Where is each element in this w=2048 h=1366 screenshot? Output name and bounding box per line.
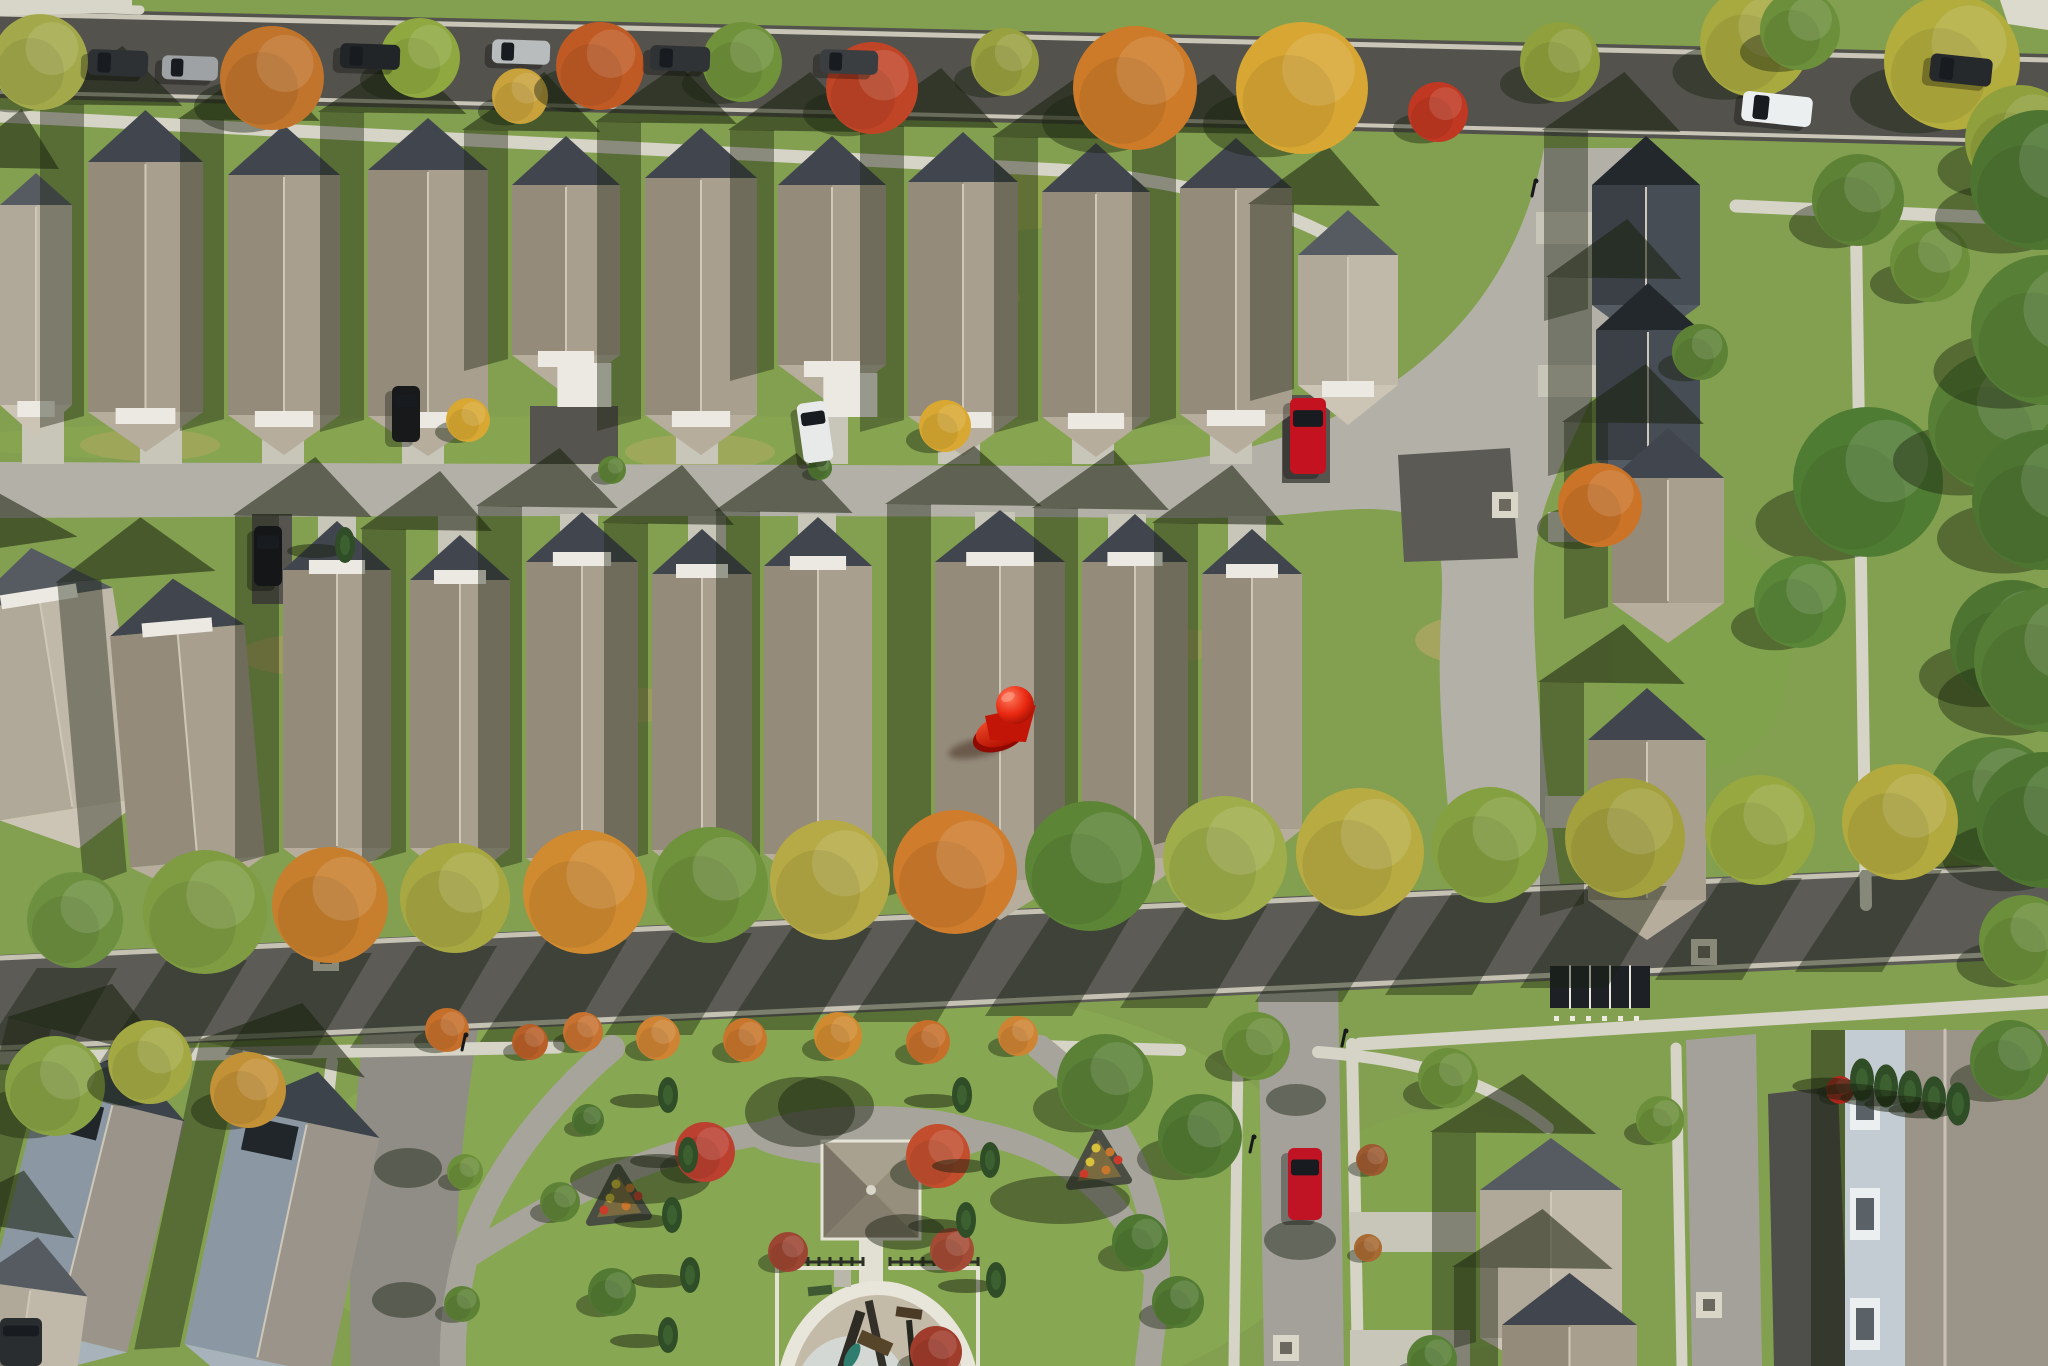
tree-highlight — [1282, 33, 1355, 106]
parked-car-windshield — [349, 46, 363, 65]
ground-shadow — [1266, 1084, 1326, 1116]
tree-highlight — [1091, 1042, 1144, 1095]
fence-post — [900, 1257, 903, 1266]
house-part — [1226, 564, 1278, 578]
house-part — [645, 178, 701, 415]
tree-highlight — [605, 1272, 631, 1298]
conifer-tree — [667, 1205, 677, 1225]
conifer-shadow — [610, 1334, 666, 1348]
house-part — [88, 162, 146, 412]
tree-highlight — [554, 1185, 576, 1207]
house-part — [180, 119, 224, 431]
aerial-photo — [0, 0, 2048, 1366]
house-part — [604, 523, 648, 866]
solar-post — [1586, 1016, 1591, 1021]
house-part — [1180, 188, 1236, 414]
tree-highlight — [995, 34, 1032, 71]
ground-shadow — [372, 1282, 436, 1318]
fence-post — [911, 1257, 914, 1266]
house-part — [1454, 1267, 1498, 1366]
tree-highlight — [577, 1015, 599, 1037]
sidewalk — [1234, 1054, 1238, 1366]
parked-car — [332, 43, 400, 75]
tree-highlight — [1170, 1280, 1199, 1309]
tree-highlight — [1364, 1236, 1379, 1251]
fence-post — [889, 1257, 892, 1266]
conifer-tree — [663, 1325, 673, 1345]
tree-highlight — [186, 861, 254, 929]
house-part — [1646, 185, 1700, 305]
conifer-tree — [1952, 1092, 1964, 1116]
conifer-shadow — [287, 544, 343, 558]
tree-highlight — [1786, 564, 1837, 615]
black-car-body — [254, 526, 282, 586]
house-part — [1042, 192, 1096, 417]
parked-car-body — [650, 45, 711, 72]
tree-highlight — [1367, 1147, 1385, 1165]
house-part — [1348, 255, 1398, 385]
tree-highlight — [61, 880, 114, 933]
fence-post — [818, 1257, 821, 1266]
tree-highlight — [936, 821, 1004, 889]
parked-car-body — [0, 1318, 42, 1366]
conifer-tree — [685, 1265, 695, 1285]
condo-balcony-inset — [1856, 1308, 1874, 1340]
parked-car-windshield — [171, 58, 184, 76]
tree-highlight — [1012, 1019, 1034, 1041]
conifer-shadow — [610, 1094, 666, 1108]
tree-highlight — [1607, 788, 1673, 854]
tree-highlight — [460, 1157, 480, 1177]
conifer-tree — [663, 1085, 673, 1105]
house-part — [553, 552, 611, 566]
tree-highlight — [26, 22, 79, 75]
flowers — [1086, 1158, 1095, 1167]
tree-highlight — [566, 841, 634, 909]
lamp-head — [1534, 179, 1539, 184]
red-parked-car — [1283, 398, 1326, 479]
tree-highlight — [1187, 1101, 1233, 1147]
house-part — [1207, 410, 1265, 426]
tree-highlight — [1246, 1018, 1283, 1055]
tree-highlight — [937, 404, 966, 433]
house-part — [778, 185, 832, 365]
tree-highlight — [693, 837, 757, 901]
tree-highlight — [440, 1012, 464, 1036]
tree-highlight — [928, 1330, 957, 1359]
fence-post — [840, 1257, 843, 1266]
lamp-head — [1344, 1029, 1349, 1034]
house-part — [478, 506, 522, 874]
tree-highlight — [1439, 1053, 1472, 1086]
house-part — [1068, 413, 1124, 429]
flowers — [600, 1206, 609, 1215]
ground-shadow — [778, 1076, 874, 1136]
flowers — [1106, 1148, 1115, 1157]
black-car-body — [392, 386, 420, 442]
parked-car — [80, 49, 148, 82]
house-part — [228, 175, 284, 415]
tree-highlight — [408, 25, 452, 69]
conifer-tree — [683, 1145, 693, 1165]
house-part — [790, 556, 846, 570]
house-part — [1252, 574, 1302, 829]
house-part — [818, 566, 872, 854]
conifer-tree — [340, 535, 350, 555]
house-part — [1298, 255, 1348, 385]
tree-highlight — [1116, 37, 1184, 105]
parked-car-windshield — [501, 42, 514, 60]
conifer-shadow — [904, 1094, 960, 1108]
ground-shadow — [990, 1176, 1130, 1224]
house-part — [1668, 478, 1724, 603]
tree-highlight — [439, 852, 500, 913]
red-parked-car-windshield — [1293, 410, 1323, 427]
house-part — [1132, 132, 1176, 430]
parked-car-windshield — [659, 48, 673, 67]
tree-highlight — [1206, 807, 1274, 875]
tree-highlight — [137, 1027, 183, 1073]
house-part — [597, 122, 641, 431]
solar-post — [1554, 1016, 1559, 1021]
conifer-shadow — [1888, 1102, 1955, 1119]
parked-car-body — [492, 39, 551, 65]
tree-highlight — [461, 402, 485, 426]
house-part — [652, 574, 702, 850]
tree-highlight — [1425, 1339, 1453, 1366]
black-car — [385, 386, 420, 447]
conifer-tree — [961, 1210, 971, 1230]
house-part — [672, 411, 730, 427]
red-driving-car-body — [1288, 1148, 1322, 1220]
flowers — [1092, 1144, 1101, 1153]
house-part — [1250, 204, 1294, 401]
red-driving-car-windshield — [1291, 1160, 1319, 1176]
solar-post — [1602, 1016, 1607, 1021]
red-driving-car — [1281, 1148, 1322, 1225]
tree-highlight — [525, 1027, 545, 1047]
tree-highlight — [1587, 470, 1633, 516]
tree-highlight — [1653, 1100, 1679, 1126]
house-part — [860, 126, 904, 432]
tree-highlight — [457, 1289, 477, 1309]
house-part — [1540, 682, 1584, 916]
house-part — [526, 562, 582, 858]
house-part — [410, 580, 460, 848]
parked-car — [484, 39, 550, 70]
lamp-head — [1252, 1135, 1257, 1140]
manhole-cover — [1703, 1299, 1715, 1311]
parked-car-body — [340, 43, 401, 70]
tree-highlight — [782, 1235, 804, 1257]
tree-highlight — [730, 29, 774, 73]
house-part — [716, 511, 760, 870]
house-part — [362, 529, 406, 864]
fence-post — [851, 1257, 854, 1266]
house-part — [1322, 381, 1374, 397]
condo-balcony-inset — [1856, 1198, 1874, 1230]
house-part — [1502, 1325, 1570, 1366]
parked-car-windshield — [97, 52, 111, 72]
conifer-shadow — [932, 1159, 988, 1173]
conifer-shadow — [632, 1274, 688, 1288]
park-structure — [834, 1270, 851, 1287]
parked-car-windshield — [1939, 57, 1955, 80]
tree-highlight — [1998, 1027, 2042, 1071]
house-part — [908, 182, 963, 416]
house-part — [116, 408, 176, 424]
tree-highlight — [1548, 29, 1592, 73]
solar-post — [1618, 1016, 1623, 1021]
conifer-shadow — [630, 1154, 686, 1168]
flowers — [1102, 1166, 1111, 1175]
fence-post — [977, 1257, 980, 1266]
conifer-tree — [957, 1085, 967, 1105]
conifer-tree — [991, 1270, 1001, 1290]
tree-highlight — [1744, 784, 1805, 845]
house-part — [1570, 1325, 1638, 1366]
house-part — [255, 411, 313, 427]
sidewalk — [1676, 1048, 1682, 1366]
ground-shadow — [374, 1148, 442, 1188]
tree-highlight — [256, 35, 313, 92]
lamp-head — [464, 1033, 469, 1038]
parked-car-body — [820, 49, 879, 75]
tree-highlight — [1883, 774, 1947, 838]
house-part — [1202, 574, 1252, 829]
pin-head — [996, 686, 1034, 724]
house-part — [1154, 523, 1198, 845]
flowers — [1114, 1156, 1123, 1165]
solar-post — [1634, 1016, 1639, 1021]
tree-highlight — [696, 1127, 729, 1160]
black-car-windshield — [395, 395, 417, 407]
red-parked-car-body — [1290, 398, 1326, 474]
tree-highlight — [1341, 799, 1411, 869]
tree-highlight — [608, 458, 623, 473]
house-part — [966, 552, 1034, 566]
tree-highlight — [921, 1024, 945, 1048]
house-part — [512, 185, 566, 355]
house-part — [320, 112, 364, 432]
parked-car-windshield — [3, 1326, 39, 1337]
house-part — [994, 137, 1038, 433]
tree-highlight — [1132, 1219, 1163, 1250]
house-part — [764, 566, 818, 854]
conifer-shadow — [908, 1219, 964, 1233]
tree-highlight — [313, 857, 377, 921]
parked-car — [812, 49, 878, 80]
house-part — [368, 170, 428, 416]
house-part — [309, 560, 365, 574]
tree-highlight — [1692, 329, 1723, 360]
house-part — [730, 130, 774, 381]
black-car-windshield — [257, 536, 279, 549]
house-part — [464, 130, 508, 371]
tree-highlight — [738, 1022, 762, 1046]
manhole-cover — [1499, 499, 1511, 511]
conifer-tree — [985, 1150, 995, 1170]
parked-car — [0, 1318, 42, 1366]
black-car — [247, 526, 282, 591]
parked-car — [642, 45, 710, 77]
tree-highlight — [831, 1016, 857, 1042]
house-part — [40, 104, 84, 428]
tree-highlight — [237, 1058, 279, 1100]
house-part — [0, 205, 36, 405]
parked-car-windshield — [829, 52, 842, 70]
parked-car-body — [162, 55, 219, 81]
tree-highlight — [1473, 797, 1537, 861]
manhole-cover — [1280, 1342, 1292, 1354]
tree-highlight — [651, 1020, 675, 1044]
parked-car — [154, 55, 218, 86]
tree-highlight — [1844, 162, 1895, 213]
parked-car-body — [88, 49, 149, 77]
white-van-windshield — [1752, 95, 1770, 120]
sidewalk — [1352, 1044, 1358, 1366]
aerial-photo-frame — [0, 0, 2048, 1366]
fence-post — [862, 1257, 865, 1266]
tree-highlight — [40, 1045, 95, 1100]
tree-highlight — [1071, 812, 1143, 884]
house-part — [283, 570, 337, 848]
conifer-shadow — [938, 1279, 994, 1293]
tree-highlight — [1429, 87, 1462, 120]
tree-highlight — [583, 1107, 601, 1125]
conifer-shadow — [614, 1214, 670, 1228]
tree-highlight — [812, 830, 878, 896]
fence-post — [829, 1257, 832, 1266]
gazebo-cupola — [866, 1185, 876, 1195]
ground-shadow — [1264, 1220, 1336, 1260]
tree-highlight — [587, 29, 635, 77]
solar-post — [1570, 1016, 1575, 1021]
